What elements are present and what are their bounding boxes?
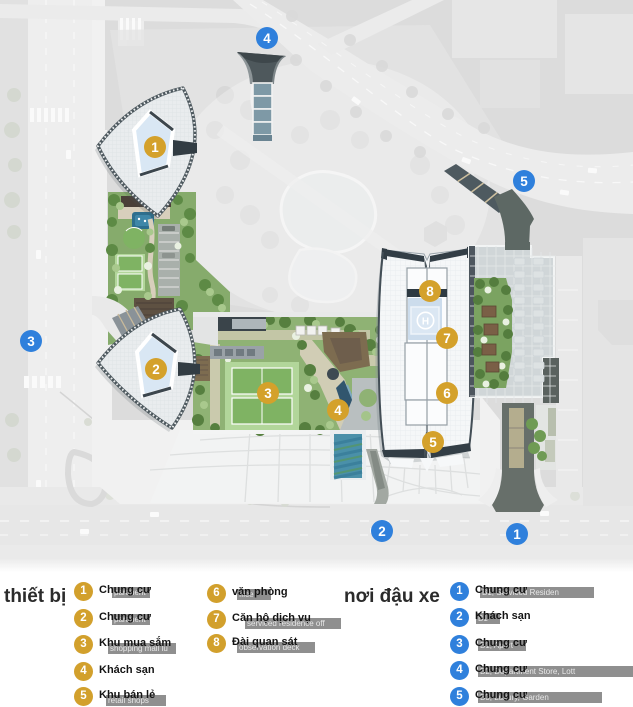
svg-text:2: 2	[152, 362, 160, 377]
svg-text:4: 4	[263, 31, 271, 46]
svg-text:3: 3	[27, 334, 35, 349]
svg-text:7: 7	[443, 331, 451, 346]
svg-text:8: 8	[426, 284, 434, 299]
svg-text:H: H	[422, 317, 429, 328]
svg-text:1: 1	[513, 527, 521, 542]
svg-text:4: 4	[334, 403, 342, 418]
svg-text:6: 6	[443, 386, 451, 401]
svg-text:5: 5	[429, 435, 437, 450]
svg-text:3: 3	[264, 386, 272, 401]
svg-text:1: 1	[151, 140, 159, 155]
svg-text:5: 5	[520, 174, 528, 189]
svg-text:2: 2	[378, 524, 386, 539]
